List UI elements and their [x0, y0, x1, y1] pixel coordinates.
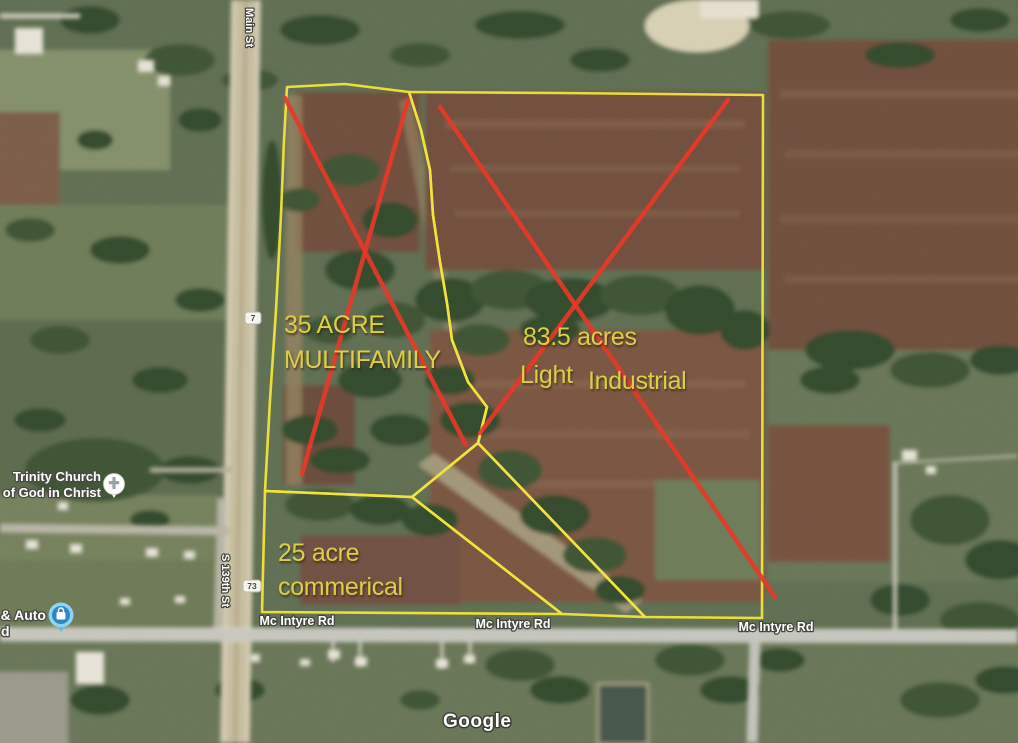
road-label-s-139th-st: S 139th St — [219, 554, 231, 608]
map-canvas[interactable]: 35 ACRE MULTIFAMILY 83.5 acres Light Ind… — [0, 0, 1018, 743]
shield-73-number: 73 — [247, 581, 257, 591]
aerial-map[interactable]: 35 ACRE MULTIFAMILY 83.5 acres Light Ind… — [0, 0, 1018, 743]
multifamily-size-label: 35 ACRE — [284, 311, 385, 339]
multifamily-use-label: MULTIFAMILY — [284, 346, 442, 374]
commercial-use-label: commerical — [278, 573, 403, 601]
road-label-mcintyre-3: Mc Intyre Rd — [738, 620, 813, 634]
industrial-use-label-word2: Industrial — [588, 367, 686, 395]
road-label-mcintyre-1: Mc Intyre Rd — [259, 614, 334, 628]
google-watermark: Google — [443, 711, 511, 732]
industrial-size-label: 83.5 acres — [523, 323, 637, 351]
highway-shield-7: 7 — [245, 312, 261, 324]
auto-shop-label-fragment: d — [1, 623, 10, 639]
highway-shield-73: 73 — [243, 580, 261, 592]
road-label-main-st: Main St — [243, 8, 255, 47]
road-label-mcintyre-2: Mc Intyre Rd — [475, 617, 550, 631]
church-label-line2: of God in Christ — [3, 485, 102, 500]
photo-grain — [0, 0, 1018, 743]
shield-7-number: 7 — [251, 313, 256, 323]
commercial-size-label: 25 acre — [278, 539, 359, 567]
industrial-use-label-word1: Light — [520, 361, 573, 389]
auto-shop-label: n & Auto — [0, 607, 46, 623]
church-label-line1: Trinity Church — [13, 469, 101, 484]
